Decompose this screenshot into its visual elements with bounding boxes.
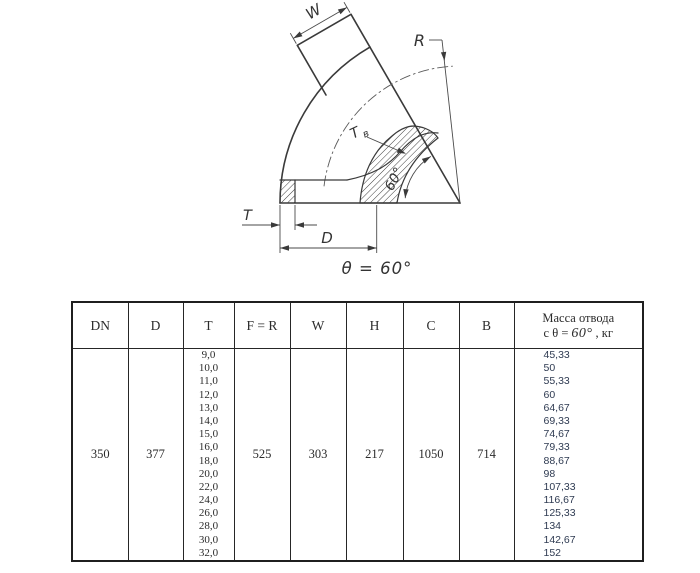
value-line: 30,0 <box>184 534 234 547</box>
value-line: 60 <box>544 389 643 402</box>
header-b: B <box>459 302 514 349</box>
t-arrow-left <box>271 222 280 227</box>
elbow-drawing: W R Т в 60° <box>0 0 700 296</box>
wall-section-hatch-inner <box>360 126 438 203</box>
cell-t-values: 9,010,011,012,013,014,015,016,018,020,02… <box>183 349 234 562</box>
value-line: 11,0 <box>184 375 234 388</box>
cell-w: 303 <box>290 349 346 562</box>
value-line: 107,33 <box>544 481 643 494</box>
cell-h: 217 <box>346 349 403 562</box>
value-line: 15,0 <box>184 428 234 441</box>
header-row: DN D T F = R W H C B Масса отвода с θ =6… <box>72 302 643 349</box>
t-dimension-label: T <box>243 208 253 224</box>
value-line: 98 <box>544 468 643 481</box>
value-line: 20,0 <box>184 468 234 481</box>
value-line: 10,0 <box>184 362 234 375</box>
t-values-list: 9,010,011,012,013,014,015,016,018,020,02… <box>184 349 234 560</box>
value-line: 134 <box>544 520 643 533</box>
mass-header-suffix: , кг <box>596 326 613 340</box>
value-line: 50 <box>544 362 643 375</box>
weld-end-face-line <box>297 14 351 45</box>
value-line: 45,33 <box>544 349 643 362</box>
wall-section-hatch-left <box>280 180 295 203</box>
header-mass: Масса отвода с θ =60°, кг <box>514 302 643 349</box>
mass-header-angle: 60° <box>571 326 592 341</box>
dim-t: T <box>242 205 317 253</box>
value-line: 152 <box>544 547 643 560</box>
value-line: 125,33 <box>544 507 643 520</box>
value-line: 12,0 <box>184 389 234 402</box>
value-line: 26,0 <box>184 507 234 520</box>
data-row: 350 377 9,010,011,012,013,014,015,016,01… <box>72 349 643 562</box>
cell-dn: 350 <box>72 349 128 562</box>
header-c: C <box>403 302 459 349</box>
value-line: 28,0 <box>184 520 234 533</box>
angle-arrow-bottom <box>403 189 409 198</box>
cell-mass-values: 45,335055,336064,6769,3374,6779,3388,679… <box>514 349 643 562</box>
value-line: 14,0 <box>184 415 234 428</box>
value-line: 74,67 <box>544 428 643 441</box>
value-line: 9,0 <box>184 349 234 362</box>
value-line: 69,33 <box>544 415 643 428</box>
r-dimension-label: R <box>414 31 425 50</box>
dim-r: R <box>414 31 460 203</box>
value-line: 64,67 <box>544 402 643 415</box>
dim-w: W <box>290 0 350 44</box>
dim-d: D <box>280 205 377 253</box>
header-t: T <box>183 302 234 349</box>
mass-header-line1: Масса отвода <box>515 311 643 326</box>
figure-caption: θ = 60° <box>342 259 413 278</box>
mass-header-prefix: с θ = <box>544 326 569 340</box>
tv-dimension-sub-label: в <box>361 128 371 141</box>
mass-values-list: 45,335055,336064,6769,3374,6779,3388,679… <box>515 349 643 560</box>
value-line: 22,0 <box>184 481 234 494</box>
cell-d: 377 <box>128 349 183 562</box>
cell-c: 1050 <box>403 349 459 562</box>
value-line: 16,0 <box>184 441 234 454</box>
header-w: W <box>290 302 346 349</box>
weld-end-side-line <box>297 45 326 95</box>
cell-fr: 525 <box>234 349 290 562</box>
value-line: 88,67 <box>544 455 643 468</box>
value-line: 18,0 <box>184 455 234 468</box>
mass-header-line2: с θ =60°, кг <box>515 326 643 341</box>
header-d: D <box>128 302 183 349</box>
value-line: 55,33 <box>544 375 643 388</box>
w-dimension-label: W <box>303 0 326 23</box>
value-line: 116,67 <box>544 494 643 507</box>
value-line: 13,0 <box>184 402 234 415</box>
cell-b: 714 <box>459 349 514 562</box>
t-arrow-right <box>295 222 304 227</box>
value-line: 79,33 <box>544 441 643 454</box>
d-dimension-label: D <box>321 229 333 247</box>
header-h: H <box>346 302 403 349</box>
dimension-table: DN D T F = R W H C B Масса отвода с θ =6… <box>71 301 644 562</box>
header-dn: DN <box>72 302 128 349</box>
value-line: 142,67 <box>544 534 643 547</box>
r-arrow <box>441 52 447 62</box>
d-arrow-right <box>368 245 377 250</box>
header-fr: F = R <box>234 302 290 349</box>
value-line: 24,0 <box>184 494 234 507</box>
page: W R Т в 60° <box>0 0 700 573</box>
r-radius-line <box>442 40 460 203</box>
value-line: 32,0 <box>184 547 234 560</box>
d-arrow-left <box>280 245 289 250</box>
